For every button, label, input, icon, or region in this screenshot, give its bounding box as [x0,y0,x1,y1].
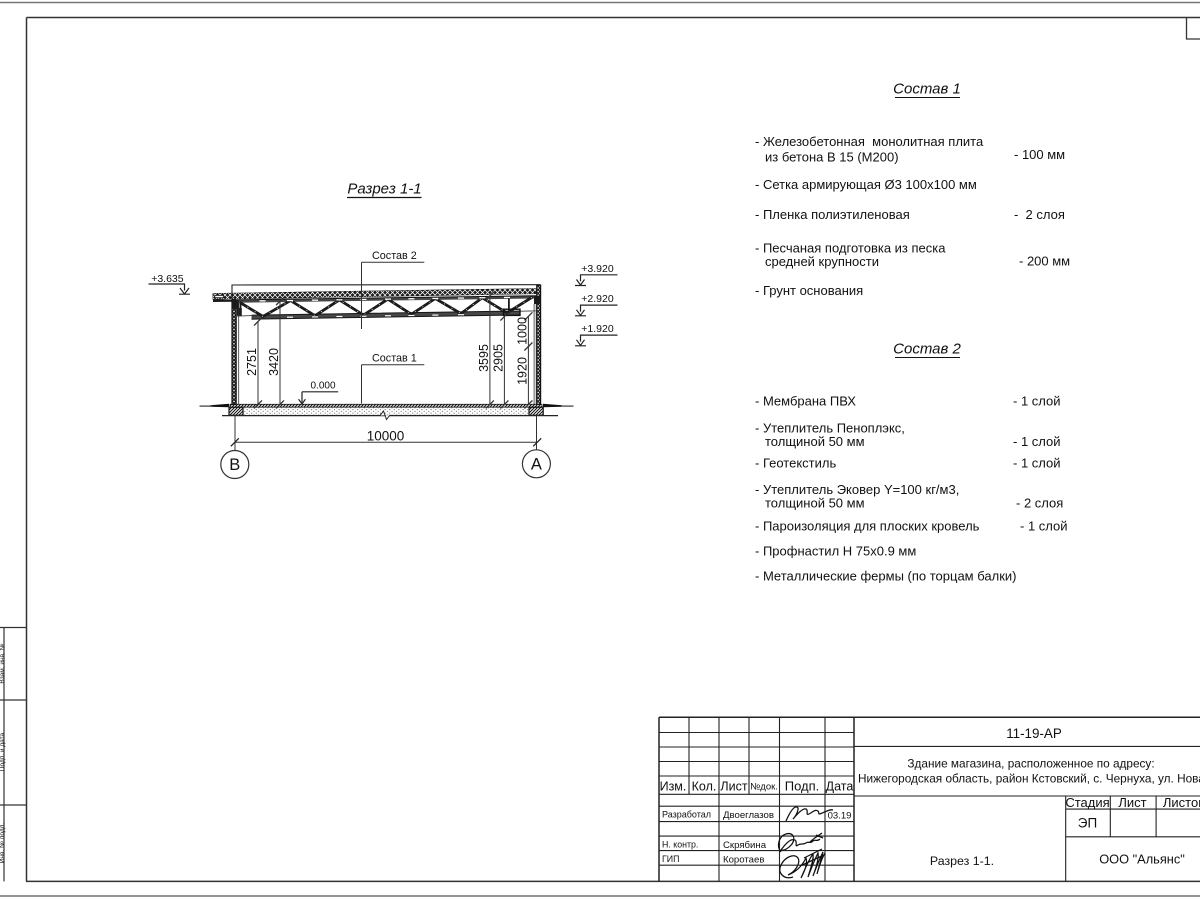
svg-text:3420: 3420 [267,348,281,376]
svg-text:Здание магазина, расположенное: Здание магазина, расположенное по адресу… [907,757,1154,771]
svg-text:- Грунт основания: - Грунт основания [755,283,863,298]
svg-text:Инв. № подл.: Инв. № подл. [0,823,6,864]
svg-text:- 200 мм: - 200 мм [1019,254,1070,269]
svg-text:+3.920: +3.920 [581,263,614,275]
svg-text:1000: 1000 [516,317,530,345]
svg-text:- 2 слоя: - 2 слоя [1014,207,1065,222]
svg-text:средней крупности: средней крупности [765,254,879,269]
svg-text:Нижегородская область, район К: Нижегородская область, район Кстовский, … [858,772,1200,786]
svg-text:Скрябина: Скрябина [723,840,767,851]
svg-text:Кол.: Кол. [692,780,717,794]
svg-text:- 1 слой: - 1 слой [1013,434,1061,449]
svg-text:Разработал: Разработал [662,810,711,820]
svg-text:- Пароизоляция для плоских кро: - Пароизоляция для плоских кровель [755,519,980,534]
svg-text:- 1 слой: - 1 слой [1020,519,1068,534]
svg-text:Дата: Дата [826,780,854,794]
svg-text:- Мембрана ПВХ: - Мембрана ПВХ [755,394,856,409]
svg-text:Разрез 1-1.: Разрез 1-1. [930,854,994,868]
svg-text:- 1 слой: - 1 слой [1013,456,1061,471]
svg-text:Лист: Лист [1118,795,1146,810]
svg-text:ООО "Альянс": ООО "Альянс" [1099,852,1185,867]
svg-text:+2.920: +2.920 [581,293,614,305]
svg-text:- Железобетонная монолитная п: - Железобетонная монолитная плита [755,134,984,149]
svg-text:- 1 слой: - 1 слой [1013,394,1061,409]
svg-text:Лист: Лист [720,780,747,794]
svg-text:- Металлические фермы (по торц: - Металлические фермы (по торцам балки) [755,569,1016,584]
svg-text:- 100 мм: - 100 мм [1014,147,1065,162]
svg-text:- Пленка полиэтиленовая: - Пленка полиэтиленовая [755,207,910,222]
svg-text:Двоеглазов: Двоеглазов [723,810,774,821]
svg-text:Коротаев: Коротаев [723,855,764,866]
svg-text:0.000: 0.000 [311,381,336,392]
svg-text:Состав 1: Состав 1 [372,352,417,364]
svg-text:3595: 3595 [477,344,491,372]
svg-text:- 2 слоя: - 2 слоя [1016,496,1063,511]
svg-text:толщиной 50 мм: толщиной 50 мм [765,434,865,449]
svg-text:Состав 2: Состав 2 [893,341,961,358]
svg-text:2751: 2751 [245,348,259,376]
svg-text:Подп.: Подп. [785,779,820,794]
svg-text:11-19-АР: 11-19-АР [1006,726,1062,741]
svg-text:№док.: №док. [750,782,778,793]
svg-text:1920: 1920 [516,357,530,385]
svg-text:Стадия: Стадия [1065,795,1109,810]
svg-text:из бетона В 15 (М200): из бетона В 15 (М200) [765,150,899,165]
svg-text:Н. контр.: Н. контр. [662,840,698,850]
svg-text:Разрез 1-1: Разрез 1-1 [347,181,421,198]
svg-text:Взам. инв. №: Взам. инв. № [0,643,6,683]
svg-text:- Профнастил Н 75х0.9 мм: - Профнастил Н 75х0.9 мм [755,544,916,559]
svg-text:03.19: 03.19 [828,811,852,822]
svg-text:Изм.: Изм. [660,780,687,794]
svg-text:Состав 1: Состав 1 [893,81,961,98]
svg-text:- Геотекстиль: - Геотекстиль [755,456,836,471]
svg-text:Подп. и дата: Подп. и дата [0,732,6,771]
svg-text:ЭП: ЭП [1078,816,1097,831]
svg-text:- Сетка армирующая Ø3 100x100: - Сетка армирующая Ø3 100x100 мм [755,177,977,192]
svg-text:2905: 2905 [492,344,506,372]
svg-text:В: В [229,456,240,474]
svg-text:Состав 2: Состав 2 [372,250,417,262]
svg-text:+3.635: +3.635 [151,273,184,285]
svg-text:Листов: Листов [1163,795,1200,810]
svg-text:толщиной 50 мм: толщиной 50 мм [765,496,865,511]
svg-text:+1.920: +1.920 [581,323,614,335]
svg-text:10000: 10000 [367,429,405,444]
svg-text:А: А [531,455,542,473]
svg-text:ГИП: ГИП [662,854,679,864]
